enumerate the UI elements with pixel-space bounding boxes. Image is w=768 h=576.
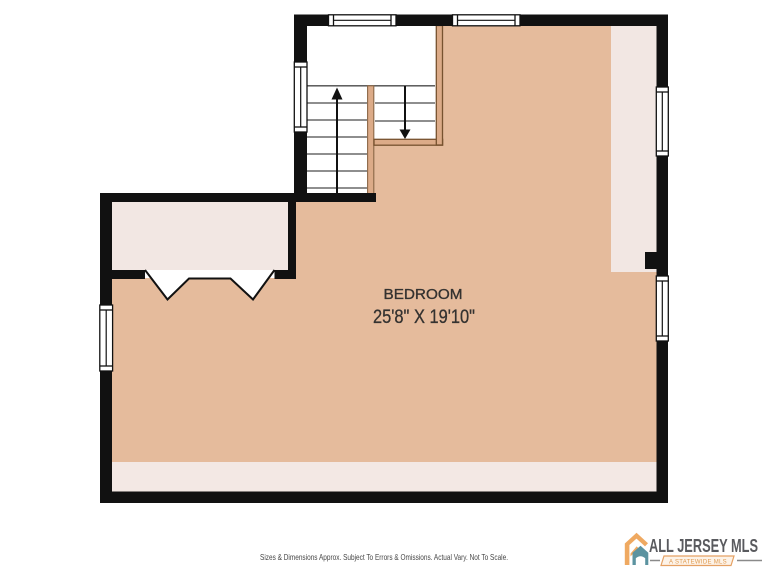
svg-text:A STATEWIDE MLS: A STATEWIDE MLS xyxy=(669,559,727,565)
svg-text:BEDROOM: BEDROOM xyxy=(384,286,463,303)
svg-text:Sizes & Dimensions Approx. Sub: Sizes & Dimensions Approx. Subject To Er… xyxy=(260,552,508,562)
svg-text:ALL JERSEY MLS: ALL JERSEY MLS xyxy=(649,535,758,556)
svg-text:25'8" X 19'10": 25'8" X 19'10" xyxy=(373,307,475,328)
